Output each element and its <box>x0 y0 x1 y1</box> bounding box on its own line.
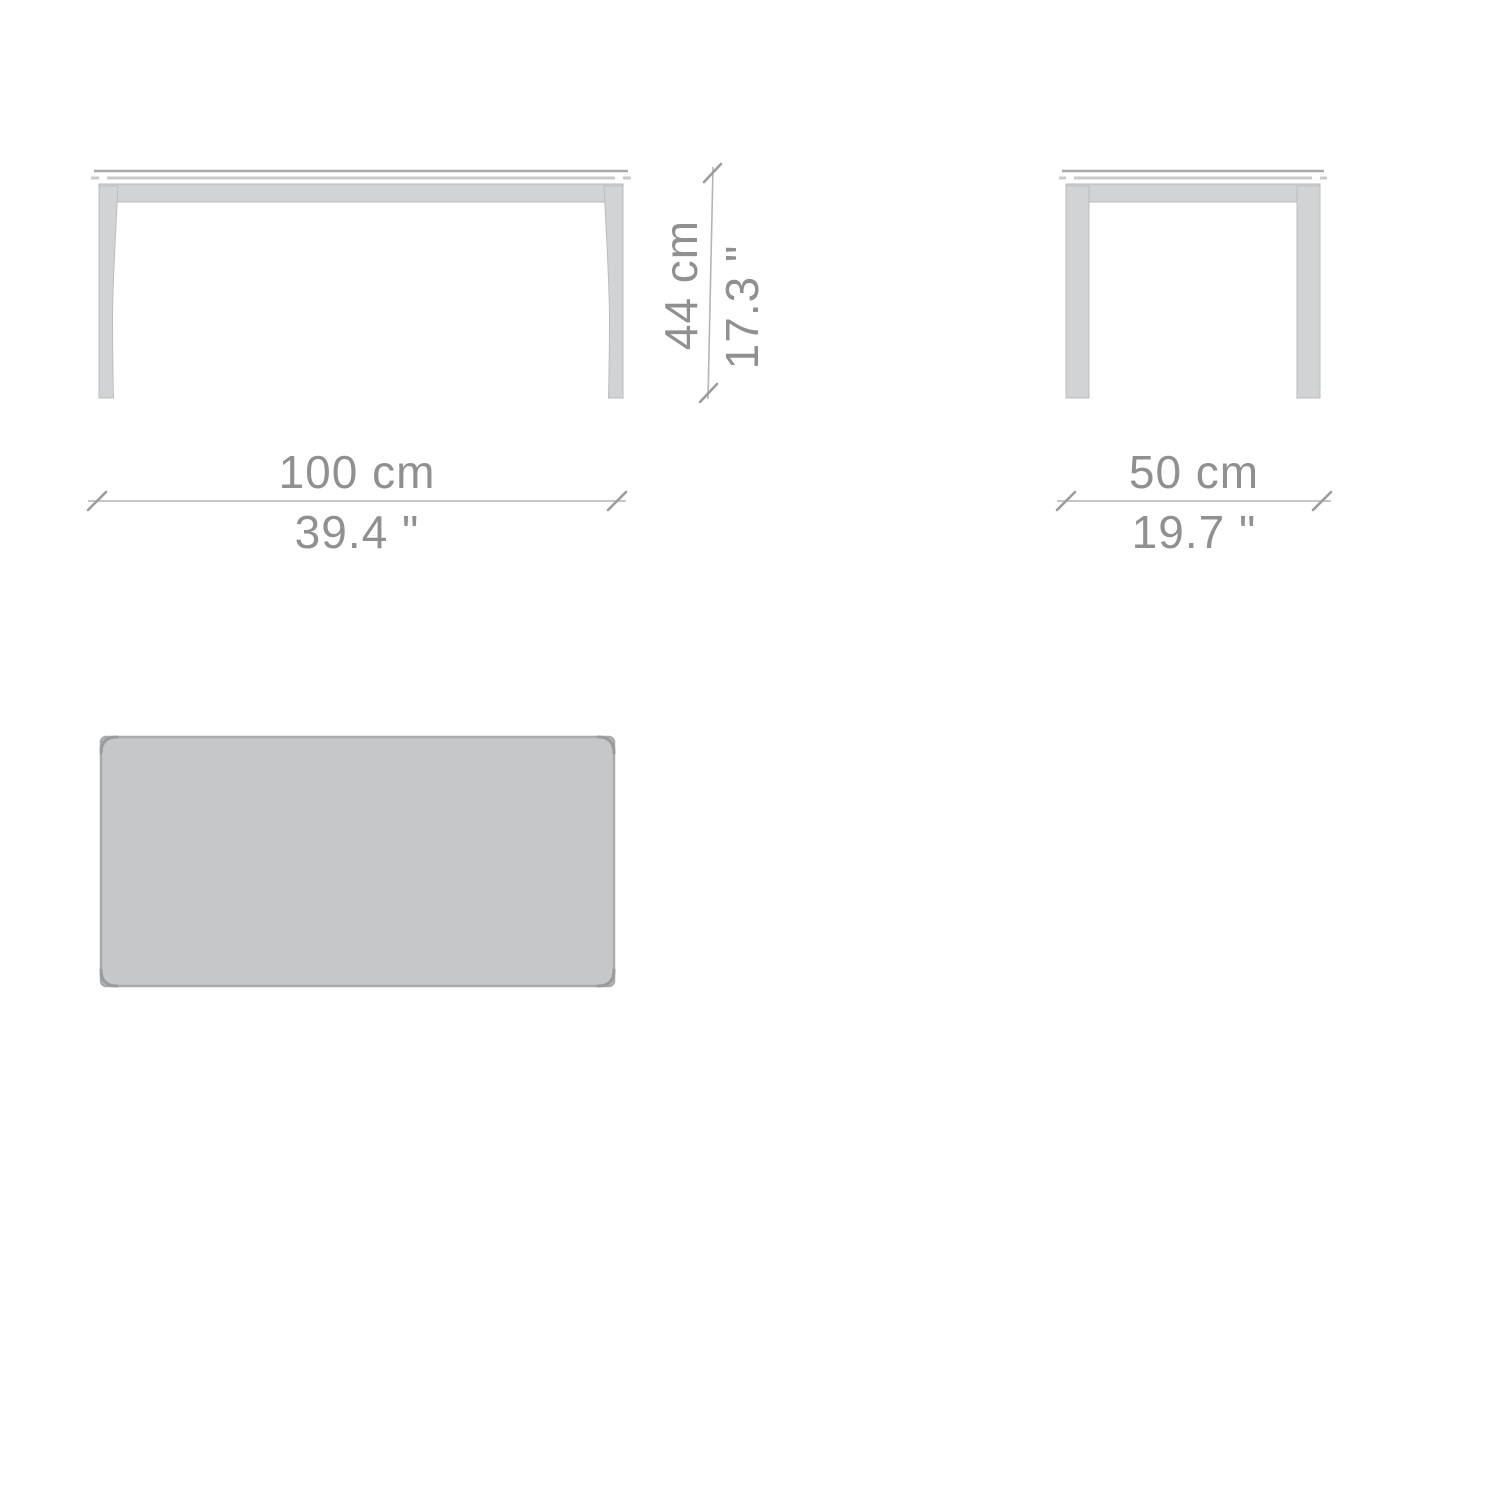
height-label-inches: 17.3 " <box>716 245 768 370</box>
top-plan-view <box>101 737 614 986</box>
dimension-drawing: 100 cm 39.4 " 50 cm 19.7 " 44 cm 17.3 " <box>0 0 1500 1500</box>
front-edge-notch-left <box>99 174 107 180</box>
side-right-leg <box>1297 186 1320 398</box>
height-dimension-line <box>708 167 713 399</box>
height-label-cm: 44 cm <box>655 220 707 350</box>
front-left-leg <box>99 186 118 398</box>
depth-label-cm: 50 cm <box>1129 446 1259 498</box>
front-edge-notch-right <box>615 174 623 180</box>
front-apron <box>99 184 623 202</box>
diagram-canvas: 100 cm 39.4 " 50 cm 19.7 " 44 cm 17.3 " <box>0 0 1500 1500</box>
side-edge-notch-left <box>1066 174 1074 180</box>
height-dimension: 44 cm 17.3 " <box>655 164 768 402</box>
width-label-inches: 39.4 " <box>295 506 420 558</box>
side-left-leg <box>1066 186 1089 398</box>
width-dimension: 100 cm 39.4 " <box>88 446 626 558</box>
width-label-cm: 100 cm <box>279 446 436 498</box>
side-elevation-view <box>1059 171 1327 398</box>
front-right-leg <box>604 186 623 398</box>
front-elevation-view <box>91 171 631 398</box>
side-apron <box>1066 184 1320 202</box>
tabletop-plan <box>101 737 614 986</box>
depth-dimension: 50 cm 19.7 " <box>1057 446 1331 558</box>
side-edge-notch-right <box>1312 174 1320 180</box>
depth-label-inches: 19.7 " <box>1132 506 1257 558</box>
